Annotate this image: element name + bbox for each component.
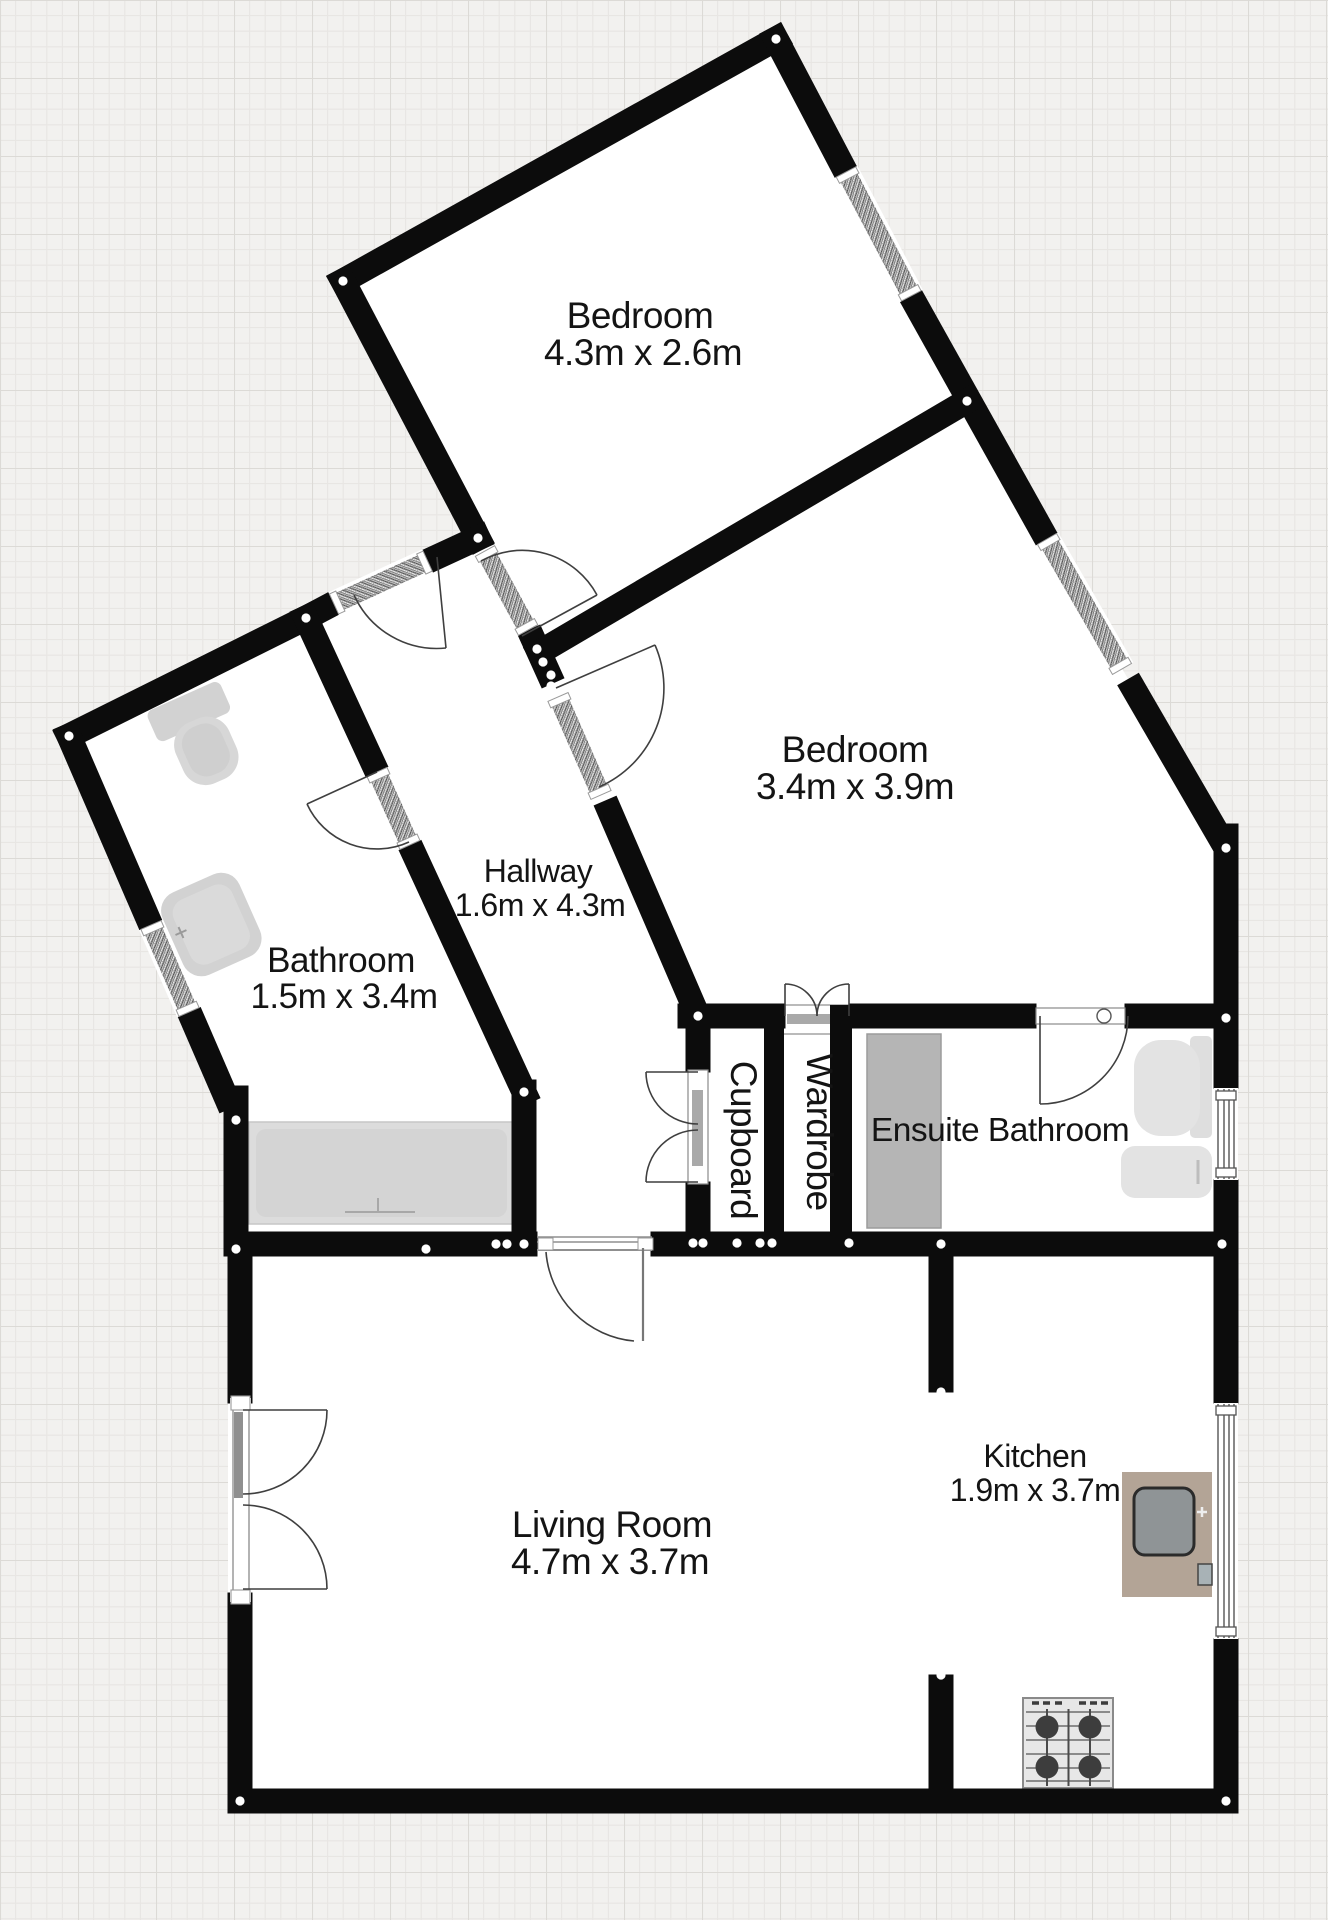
svg-text:Bedroom: Bedroom	[567, 295, 714, 336]
svg-text:Living Room: Living Room	[512, 1504, 712, 1545]
svg-text:Ensuite Bathroom: Ensuite Bathroom	[871, 1112, 1129, 1149]
svg-text:1.6m x 4.3m: 1.6m x 4.3m	[455, 887, 626, 923]
svg-text:4.7m x 3.7m: 4.7m x 3.7m	[511, 1541, 709, 1582]
svg-text:Bathroom: Bathroom	[267, 941, 415, 980]
svg-text:1.5m x 3.4m: 1.5m x 3.4m	[250, 977, 437, 1016]
svg-text:Cupboard: Cupboard	[723, 1061, 764, 1220]
svg-text:1.9m x 3.7m: 1.9m x 3.7m	[950, 1472, 1121, 1508]
svg-text:Wardrobe: Wardrobe	[799, 1053, 840, 1210]
svg-text:Kitchen: Kitchen	[983, 1438, 1086, 1474]
svg-text:4.3m x 2.6m: 4.3m x 2.6m	[544, 332, 742, 373]
svg-text:Bedroom: Bedroom	[782, 729, 929, 770]
svg-text:Hallway: Hallway	[484, 853, 593, 889]
svg-text:3.4m x 3.9m: 3.4m x 3.9m	[756, 766, 954, 807]
